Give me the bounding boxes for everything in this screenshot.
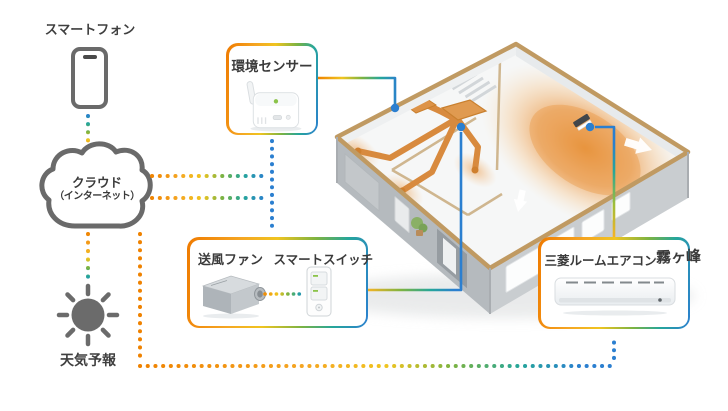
aircon-box-inner: 三菱ルームエアコン 霧ヶ峰 <box>541 240 688 327</box>
weather-label: 天気予報 <box>28 350 148 370</box>
aircon-box: 三菱ルームエアコン 霧ヶ峰 <box>538 237 690 329</box>
fan-device-image <box>197 271 267 319</box>
sun-icon <box>59 286 117 344</box>
aircon-device-image <box>554 275 678 317</box>
sensor-box: 環境センサー <box>226 43 318 135</box>
fan-switch-box: 送風ファン スマートスイッチ <box>187 237 368 328</box>
aircon-brand-logo: 霧ヶ峰 <box>655 245 692 267</box>
sensor-device-image <box>241 79 309 133</box>
fan-switch-box-inner: 送風ファン スマートスイッチ <box>190 240 366 326</box>
sensor-label: 環境センサー <box>229 55 316 75</box>
switch-device-image <box>306 266 332 318</box>
aircon-label: 三菱ルームエアコン <box>545 250 657 269</box>
callout-sensor <box>318 78 395 104</box>
sensor-box-inner: 環境センサー <box>229 46 316 133</box>
fan-label: 送風ファン <box>192 249 270 268</box>
smartphone-label: スマートフォン <box>20 19 160 38</box>
smart-home-diagram: スマートフォン クラウド （インターネット） 天気予報 環境センサー 送風ファン <box>0 0 728 411</box>
smartphone-icon <box>71 47 108 109</box>
cloud-label-line1: クラウド <box>42 176 152 191</box>
cloud-label-line2: （インターネット） <box>42 191 152 203</box>
phone-notch <box>83 55 97 59</box>
cloud-label: クラウド （インターネット） <box>42 176 152 203</box>
fan-switch-link <box>262 289 306 299</box>
